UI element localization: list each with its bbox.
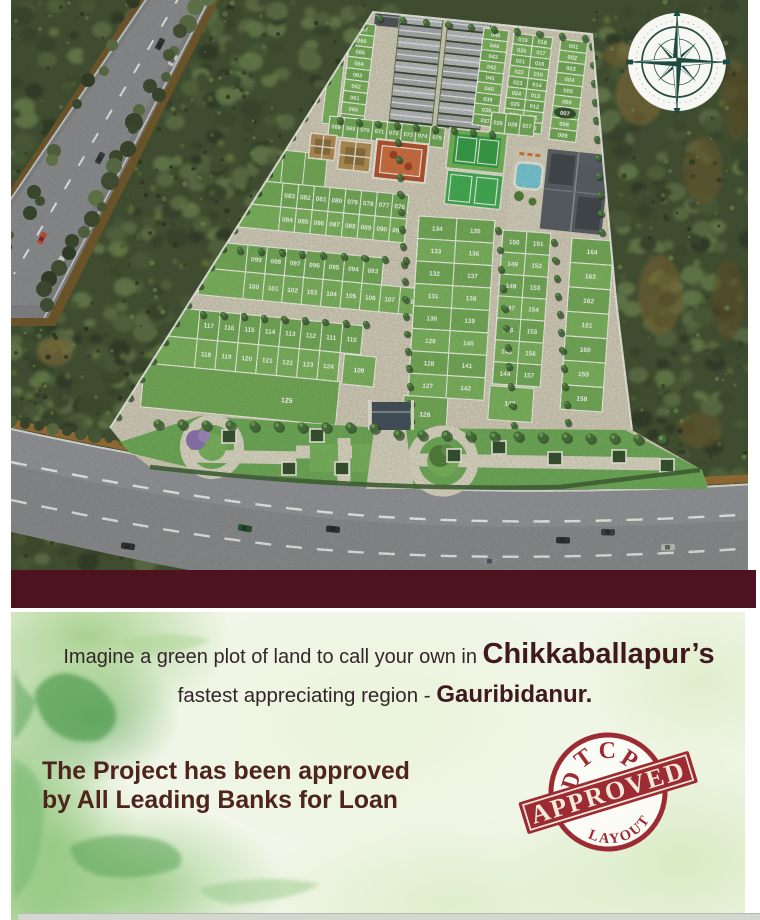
svg-text:C: C	[598, 738, 616, 764]
